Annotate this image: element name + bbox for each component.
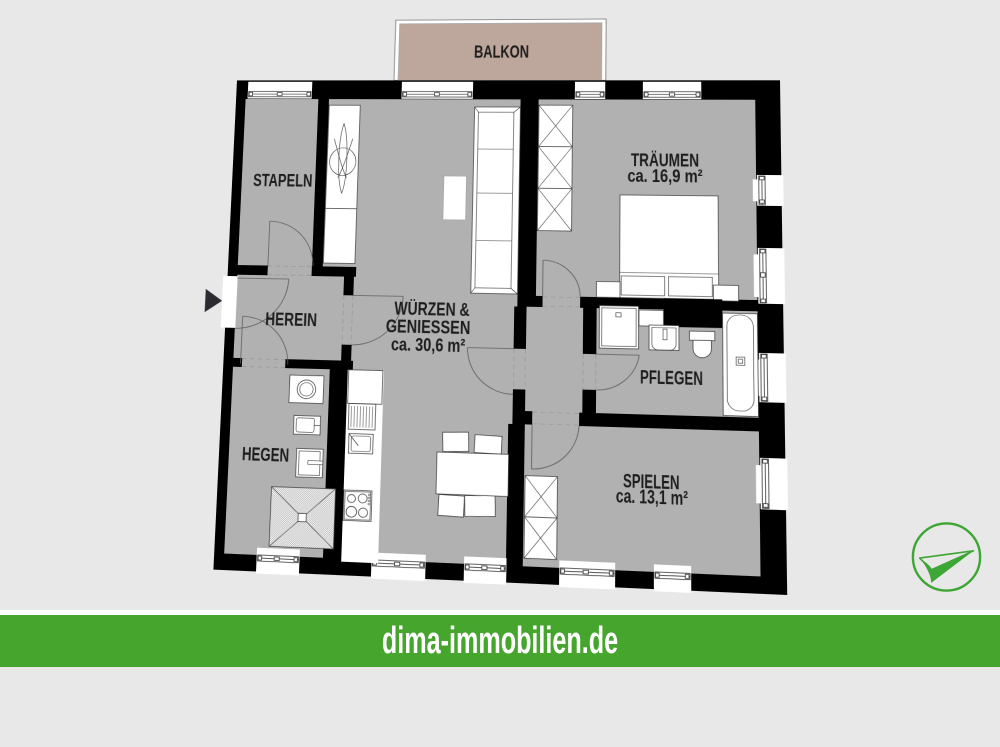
svg-text:BALKON: BALKON	[474, 42, 529, 62]
svg-text:PFLEGEN: PFLEGEN	[640, 367, 703, 390]
svg-text:ca. 30,6 m²: ca. 30,6 m²	[391, 334, 466, 356]
svg-text:ca. 13,1 m²: ca. 13,1 m²	[616, 485, 689, 509]
svg-text:HEREIN: HEREIN	[265, 309, 318, 330]
svg-text:STAPELN: STAPELN	[253, 171, 313, 191]
svg-text:HEGEN: HEGEN	[242, 444, 290, 466]
svg-text:ca. 16,9 m²: ca. 16,9 m²	[627, 166, 703, 187]
